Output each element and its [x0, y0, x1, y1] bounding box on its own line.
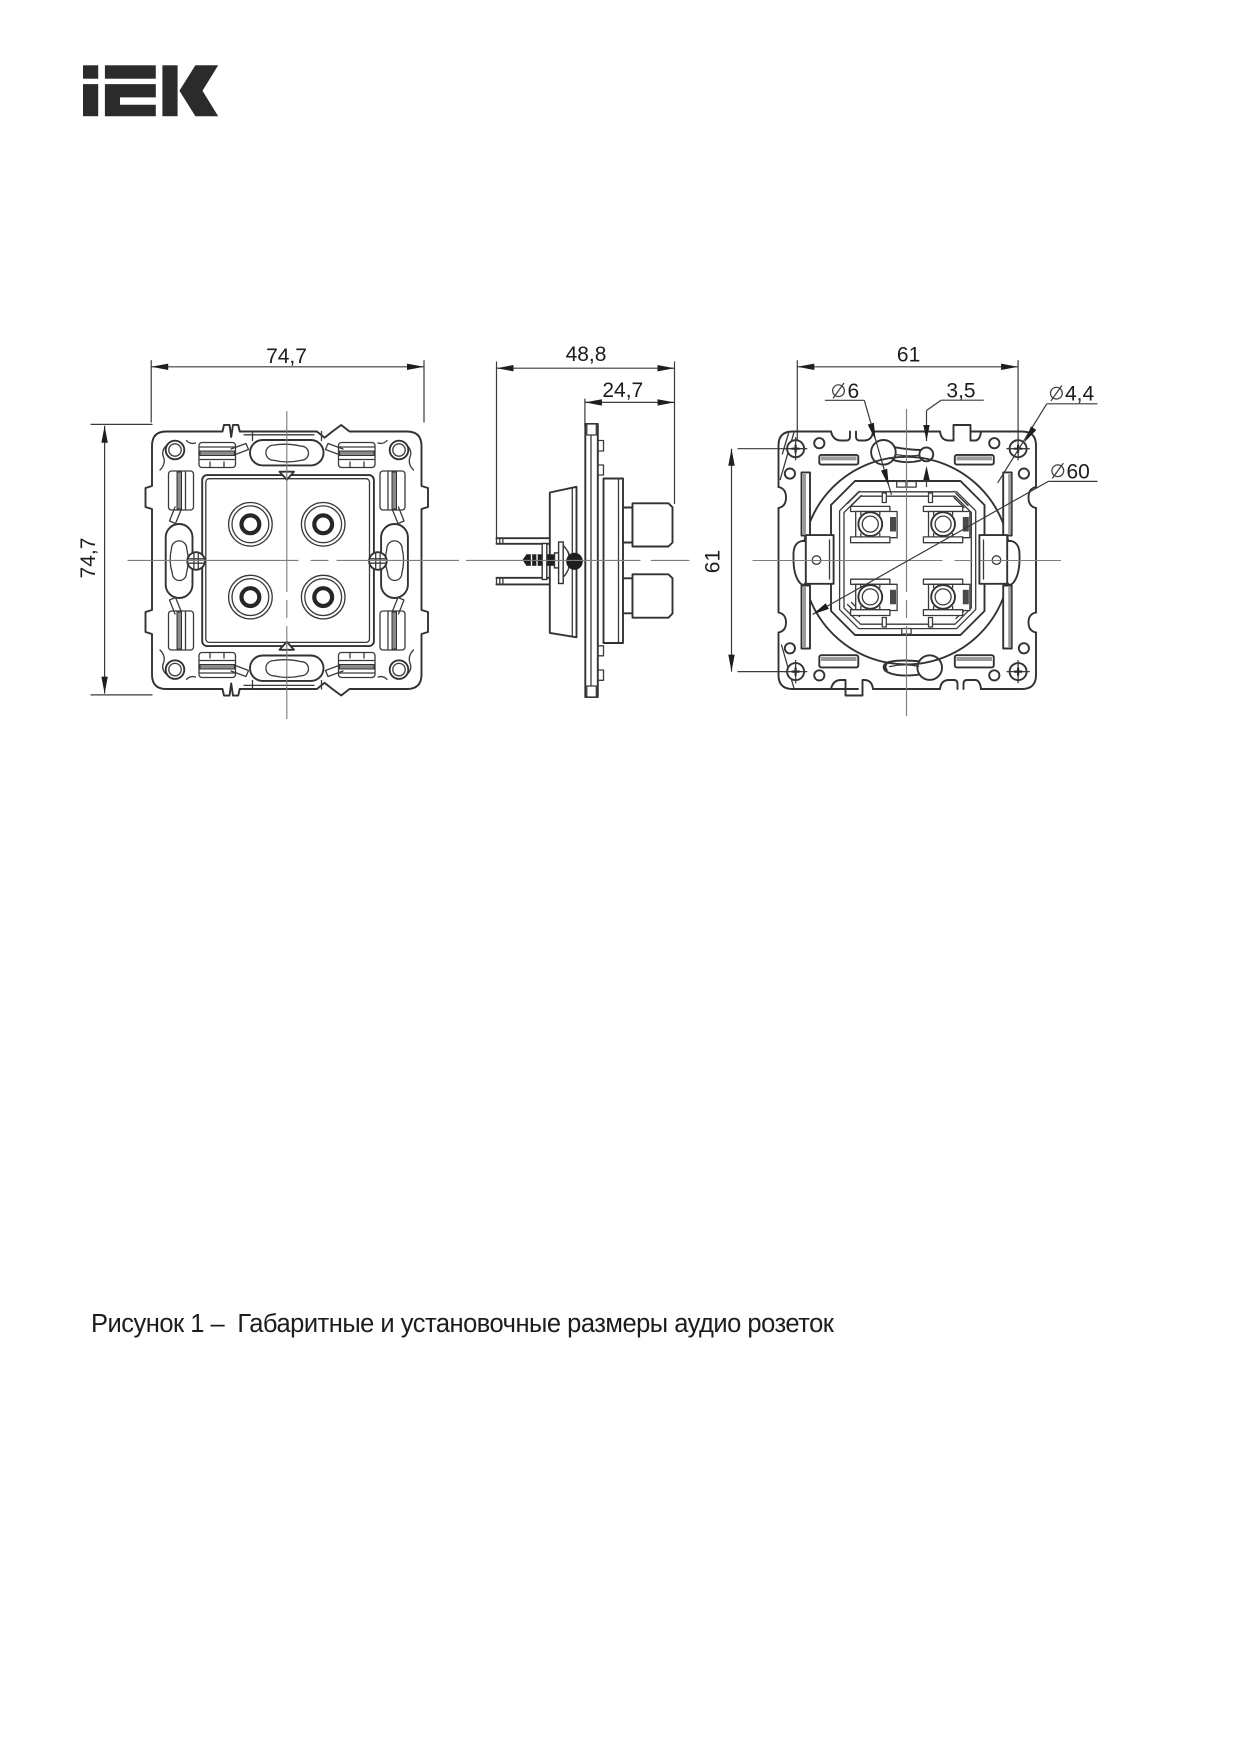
- svg-text:61: 61: [897, 344, 920, 367]
- svg-text:60: 60: [1067, 460, 1090, 483]
- svg-text:Рисунок 1 – Габаритные и уста: Рисунок 1 – Габаритные и установочные ра…: [91, 1310, 835, 1338]
- svg-text:61: 61: [702, 550, 725, 573]
- svg-text:6: 6: [848, 380, 860, 403]
- svg-text:74,7: 74,7: [77, 538, 100, 579]
- svg-text:24,7: 24,7: [602, 379, 643, 402]
- svg-text:74,7: 74,7: [266, 345, 307, 368]
- svg-text:3,5: 3,5: [946, 380, 975, 403]
- svg-text:48,8: 48,8: [566, 343, 607, 366]
- svg-text:4,4: 4,4: [1065, 383, 1095, 406]
